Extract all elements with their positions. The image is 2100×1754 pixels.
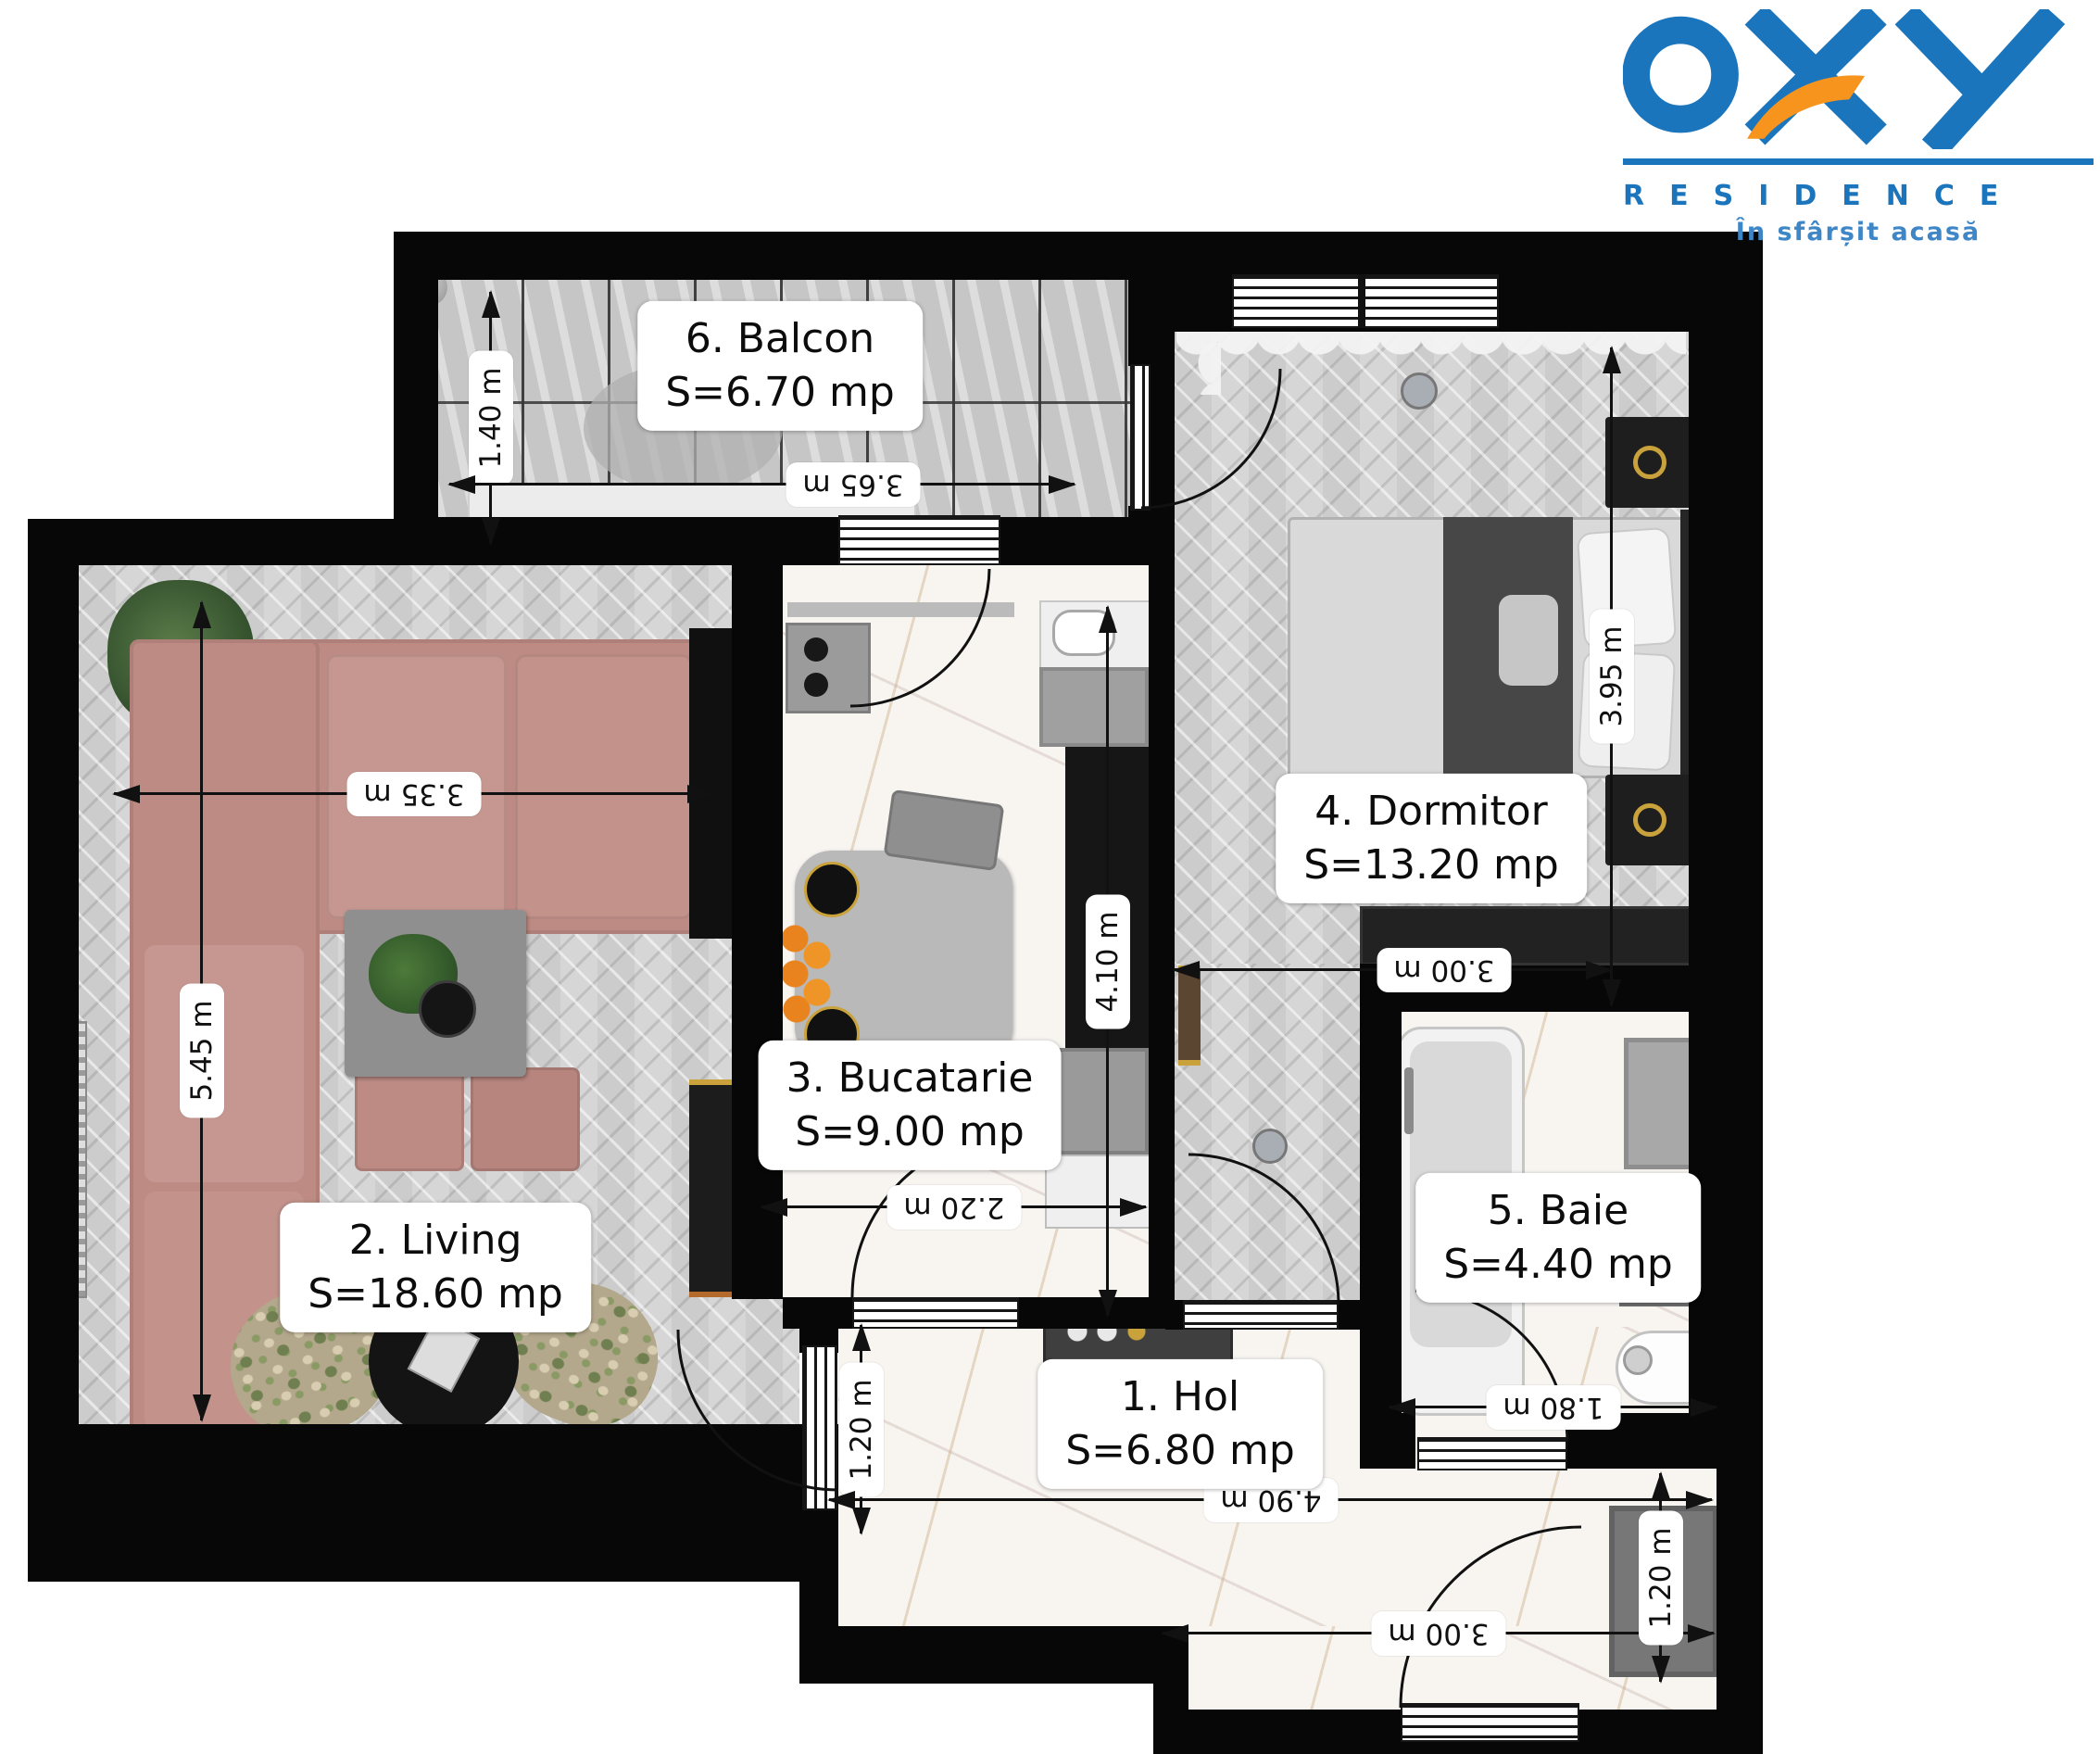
dim-kitchen-width: 2.20 m — [761, 1205, 1146, 1208]
dim-bedroom-depth: 3.95 m — [1610, 347, 1613, 1005]
room-label-living: 2. Living S=18.60 mp — [280, 1203, 591, 1332]
arrow-left-icon — [1172, 961, 1200, 979]
arrow-left-icon — [447, 475, 475, 494]
dim-living-depth: 5.45 m — [200, 602, 203, 1420]
arrow-down-icon — [1099, 1290, 1117, 1318]
arrow-right-icon — [1691, 1398, 1718, 1417]
room-name: 2. Living — [308, 1214, 563, 1268]
arrow-left-icon — [827, 1491, 855, 1509]
dim-bedroom-width: 3.00 m — [1174, 968, 1612, 971]
room-label-baie: 5. Baie S=4.40 mp — [1415, 1173, 1701, 1303]
arrow-right-icon — [1120, 1198, 1148, 1217]
arrow-right-icon — [687, 785, 715, 803]
arrow-left-icon — [1161, 1624, 1188, 1643]
dim-living-width: 3.35 m — [114, 792, 713, 795]
arrow-right-icon — [1688, 1624, 1716, 1643]
dim-label: 3.35 m — [346, 772, 481, 816]
dim-kitchen-depth: 4.10 m — [1106, 607, 1109, 1316]
arrow-up-icon — [1099, 605, 1117, 633]
dim-label: 3.65 m — [786, 462, 920, 507]
dim-entrance-depth: 1.20 m — [1659, 1473, 1662, 1682]
arrow-down-icon — [1652, 1656, 1670, 1684]
logo-residence-text: RESIDENCE — [1623, 180, 2094, 212]
room-area: S=6.70 mp — [665, 366, 895, 420]
dim-label: 5.45 m — [180, 983, 224, 1117]
room-name: 4. Dormitor — [1303, 785, 1559, 839]
room-area: S=9.00 mp — [786, 1105, 1034, 1159]
arrow-left-icon — [112, 785, 140, 803]
room-name: 6. Balcon — [665, 312, 895, 366]
arrow-down-icon — [852, 1508, 871, 1535]
dim-label: 3.00 m — [1371, 1611, 1505, 1656]
dim-entrance-width: 3.00 m — [1163, 1632, 1714, 1634]
room-area: S=18.60 mp — [308, 1268, 563, 1321]
room-area: S=13.20 mp — [1303, 839, 1559, 892]
dim-label: 1.40 m — [469, 350, 513, 485]
dim-hall-entry-depth: 1.20 m — [860, 1325, 862, 1533]
room-name: 3. Bucatarie — [786, 1052, 1034, 1105]
arrow-up-icon — [482, 290, 500, 318]
oxy-logo-mark-icon — [1623, 9, 2094, 149]
logo-tagline: În sfârșit acasă — [1623, 218, 2094, 246]
room-label-bucatarie: 3. Bucatarie S=9.00 mp — [759, 1041, 1062, 1170]
room-name: 1. Hol — [1065, 1370, 1295, 1424]
arrow-left-icon — [760, 1198, 787, 1217]
arrow-up-icon — [193, 600, 211, 628]
arrow-down-icon — [482, 518, 500, 546]
floor-plan-page: 1.40 m 3.65 m 3.35 m 5.45 m 4.10 m 2.20 … — [0, 0, 2100, 1754]
dim-label: 1.20 m — [1639, 1510, 1683, 1645]
oxy-residence-logo: RESIDENCE În sfârșit acasă — [1623, 9, 2094, 246]
room-label-hol: 1. Hol S=6.80 mp — [1037, 1359, 1323, 1489]
arrow-up-icon — [852, 1323, 871, 1351]
room-label-balcon: 6. Balcon S=6.70 mp — [637, 301, 923, 431]
room-name: 5. Baie — [1443, 1184, 1673, 1238]
dim-balcony-depth: 1.40 m — [489, 292, 492, 544]
arrow-down-icon — [1603, 979, 1621, 1007]
dim-balcony-width: 3.65 m — [449, 483, 1075, 486]
dim-label: 2.20 m — [887, 1185, 1021, 1230]
arrow-up-icon — [1603, 346, 1621, 373]
arrow-left-icon — [1388, 1398, 1415, 1417]
door-swing-arcs — [0, 0, 2100, 1754]
arrow-down-icon — [193, 1394, 211, 1422]
room-area: S=6.80 mp — [1065, 1424, 1295, 1478]
dim-label: 3.95 m — [1590, 609, 1634, 743]
dim-label: 1.80 m — [1486, 1385, 1620, 1430]
arrow-right-icon — [1049, 475, 1076, 494]
room-label-dormitor: 4. Dormitor S=13.20 mp — [1276, 774, 1587, 903]
arrow-up-icon — [1652, 1471, 1670, 1499]
dim-hall-width: 4.90 m — [829, 1498, 1712, 1501]
dim-label: 4.10 m — [1086, 894, 1130, 1028]
room-area: S=4.40 mp — [1443, 1238, 1673, 1292]
dim-label: 1.20 m — [839, 1362, 884, 1496]
arrow-right-icon — [1686, 1491, 1714, 1509]
dim-label: 3.00 m — [1377, 948, 1511, 992]
dim-bathroom-width: 1.80 m — [1390, 1406, 1716, 1408]
arrow-right-icon — [1586, 961, 1614, 979]
logo-divider — [1623, 158, 2094, 165]
